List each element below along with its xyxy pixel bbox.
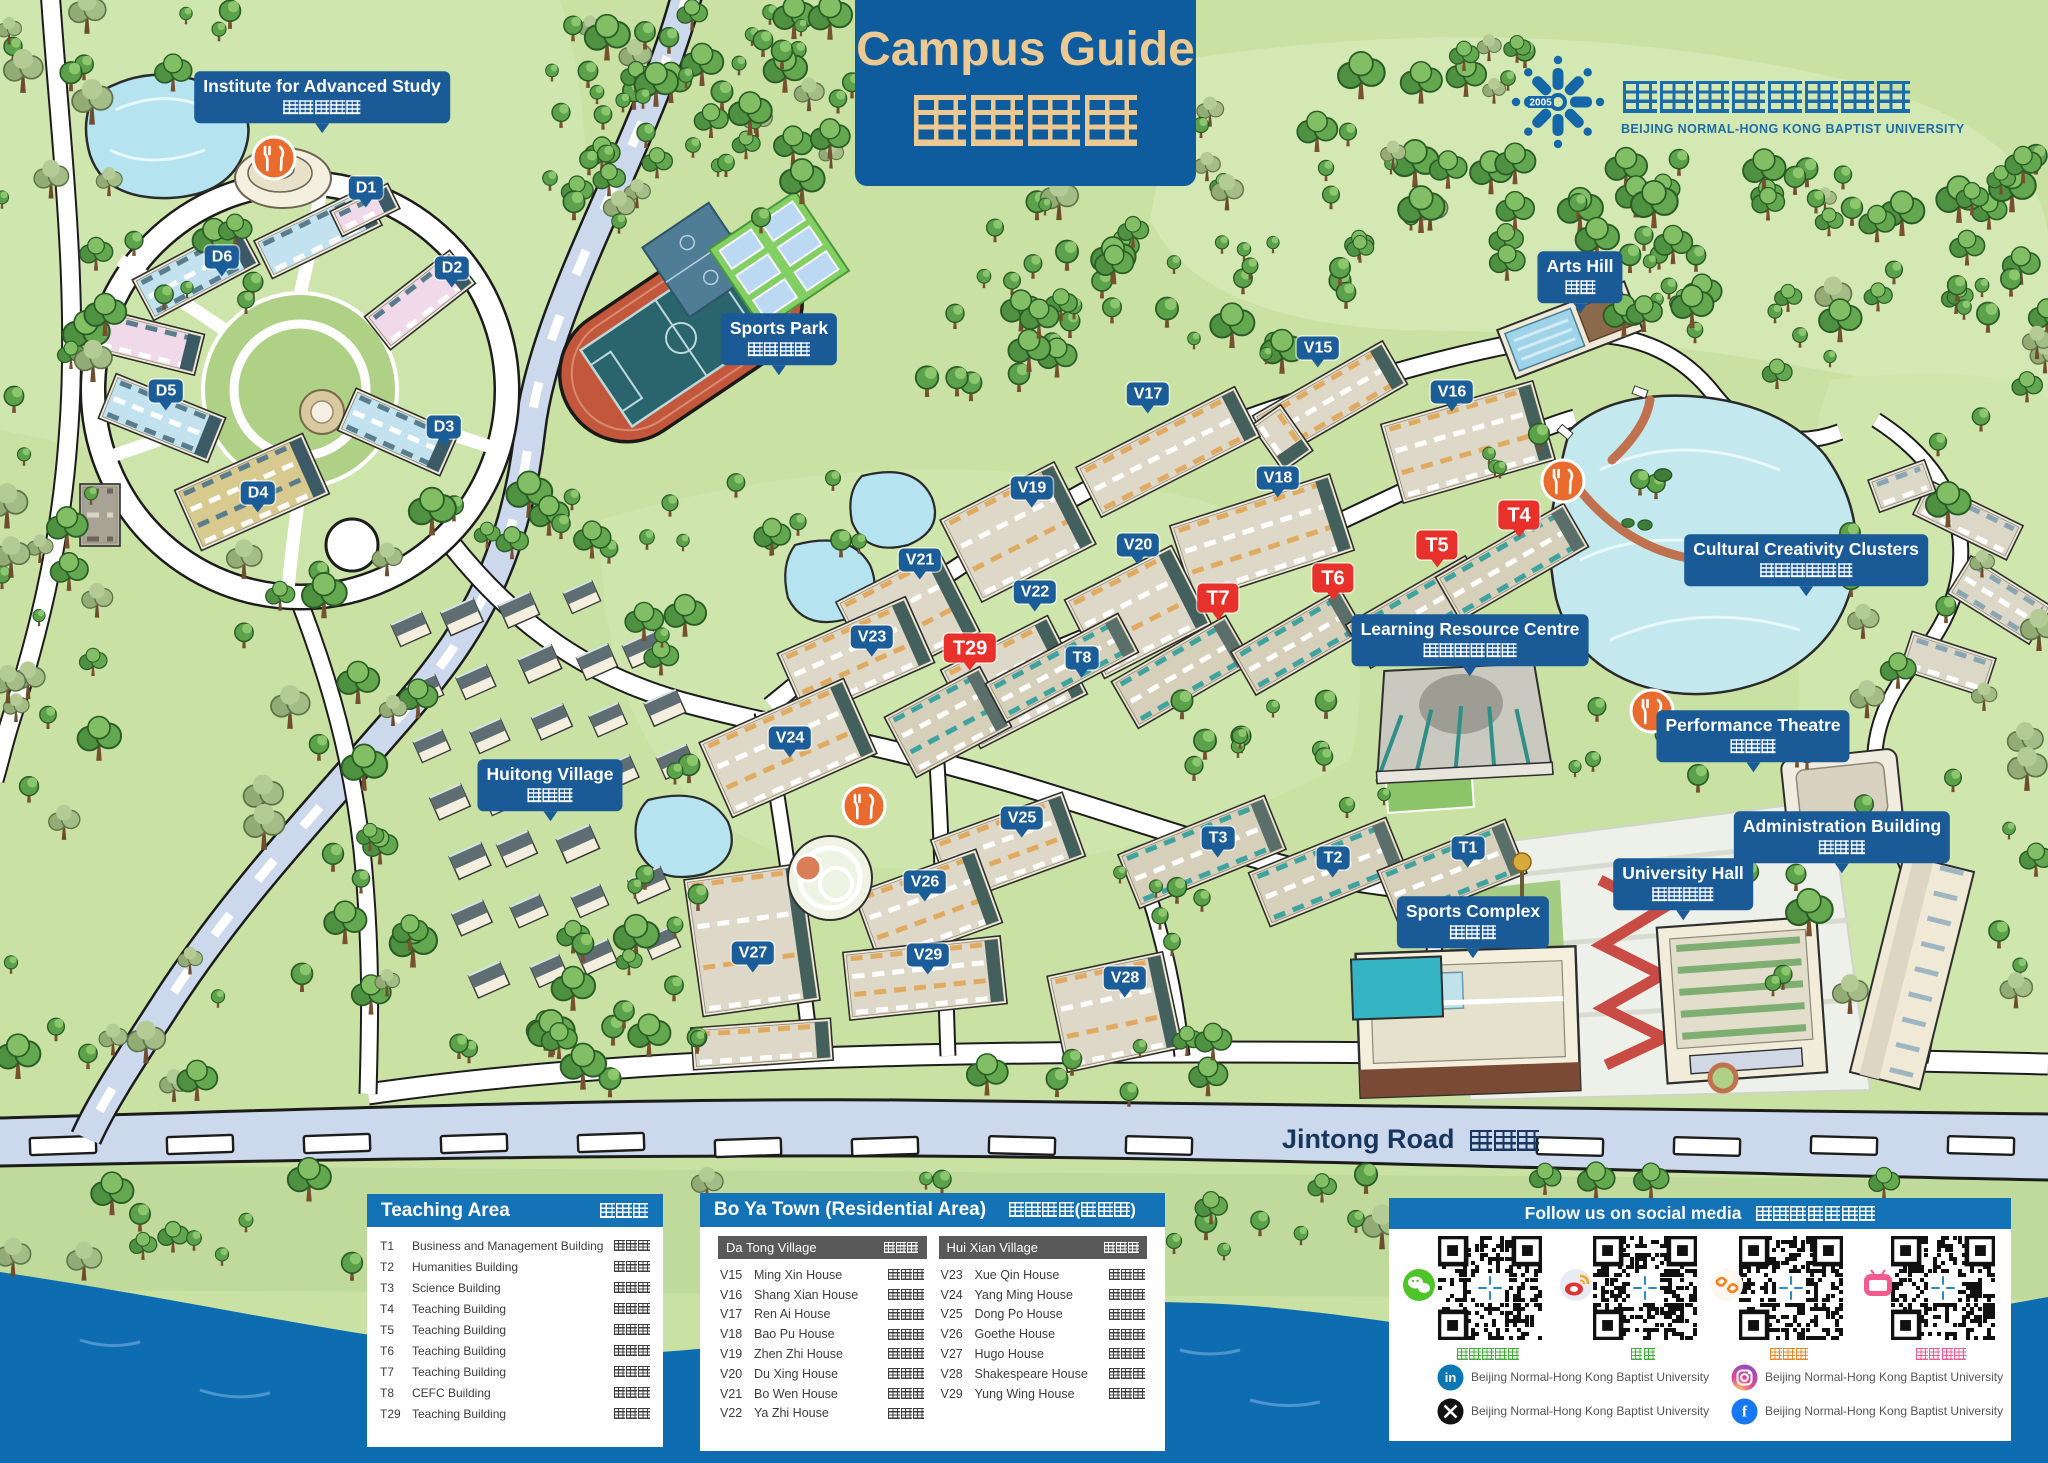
svg-text:f: f <box>1742 1404 1748 1421</box>
svg-text:in: in <box>1445 1370 1457 1385</box>
svg-text:2005: 2005 <box>1530 98 1553 109</box>
